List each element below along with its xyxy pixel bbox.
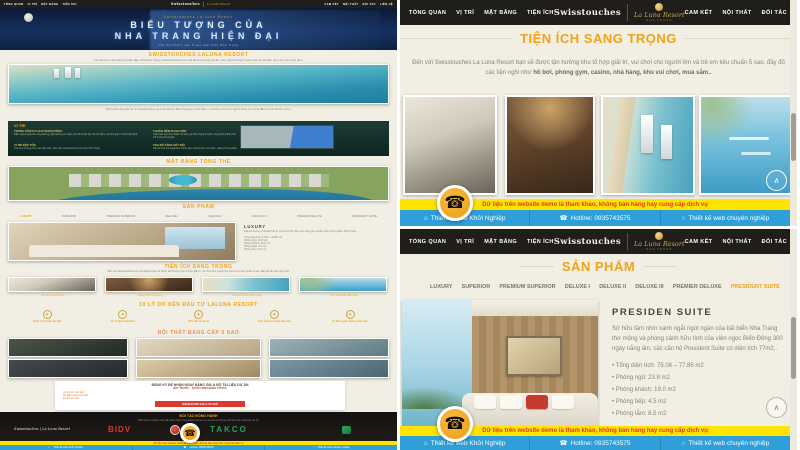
hero-subtitle: Căn hộ khách sạn 5 sao mặt biển Nha Tran…: [0, 43, 397, 47]
left-tab[interactable]: PREMIUM SUPERIOR: [107, 214, 136, 218]
panorama-tower-graphic: [75, 68, 80, 78]
hero-banner: Swisstouches La Luna Resort BIỂU TƯỢNG C…: [0, 8, 397, 50]
heading-line: [400, 38, 512, 39]
suite-name: PRESIDEN SUITE: [612, 307, 784, 318]
phone-icon: ☎: [559, 439, 567, 447]
reason-icon: ✦: [270, 310, 279, 319]
phone-icon: ☎: [444, 193, 465, 213]
amenities-title: TIỆN ÍCH SANG TRỌNG: [520, 31, 677, 46]
location-block-text: Tựa sơn hướng thủy, trực diện biển, tầm …: [14, 147, 144, 150]
reasons-row: ✦Pháp lý sở hữu lâu dài ✦Vị trí vàng mặt…: [12, 310, 385, 323]
left-nav-vi-tri[interactable]: VỊ TRÍ: [27, 3, 37, 6]
nav-vi-tri[interactable]: VỊ TRÍ: [456, 10, 474, 16]
pillow-graphic: [552, 395, 574, 409]
gallery-image-3: [269, 338, 389, 357]
left-amenities-intro: Đến với Swisstouches La Luna Resort bạn …: [16, 270, 381, 274]
tab-superior[interactable]: SUPERIOR: [462, 284, 491, 290]
reason-label: Chủ đầu tư uy tín: [164, 320, 234, 323]
hero-title-line1: BIỂU TƯỢNG CỦA: [0, 20, 397, 30]
left-nav-doi-tac[interactable]: ĐỐI TÁC: [362, 3, 375, 6]
tab-luxury[interactable]: LUXURY: [430, 284, 452, 290]
chevron-up-icon: ∧: [774, 403, 780, 412]
heading-line: [643, 266, 677, 267]
heading-line: [520, 266, 554, 267]
luxury-room-image: [8, 222, 236, 261]
amenity-image-lounge[interactable]: [505, 95, 595, 195]
panorama-caption: Phối cảnh tổng thể dự án Swisstouches La…: [20, 107, 377, 111]
footer-hotline[interactable]: ☎Hotline: 0935743575: [530, 436, 660, 450]
suite-specs: • Tổng diện tích: 75.06 – 77.85 m2 • Phò…: [612, 363, 784, 417]
luxury-name: LUXURY: [244, 224, 389, 229]
heading-line: [685, 38, 797, 39]
products-tabs: LUXURY SUPERIOR PREMIUM SUPERIOR DELUXE …: [430, 284, 780, 290]
pillow-graphic: [474, 395, 496, 409]
page: TỔNG QUAN VỊ TRÍ MẶT BẰNG TIỆN ÍCH Swiss…: [0, 0, 800, 450]
hero-pretitle: Swisstouches La Luna Resort: [0, 15, 397, 19]
amenity-caption: Khu đô thị biển Nha Trang: [202, 294, 292, 297]
phone-icon: ☎: [559, 214, 567, 222]
home-icon: ⌂: [424, 215, 428, 222]
footer-hotline[interactable]: ☎Hotline: 0935743575: [530, 210, 660, 226]
left-amenity-image-4: [299, 277, 387, 292]
suite-info: PRESIDEN SUITE Sở hữu tầm nhìn xanh ngắt…: [612, 307, 784, 417]
location-block-text: Nằm ngay trung tâm cung đường nghỉ dưỡng…: [14, 133, 144, 136]
amenities-intro: Đến với Swisstouches La Luna Resort bạn …: [412, 58, 785, 78]
moon-icon: [655, 3, 663, 11]
partner-logo-bidv[interactable]: BIDV: [108, 425, 131, 434]
phone-icon: ☎: [444, 414, 465, 434]
location-block-text: Liền kề tiện ích ngoại khu: bệnh viện, t…: [153, 147, 238, 150]
left-amenity-image-2: [105, 277, 193, 292]
nav-cam-ket[interactable]: CAM KẾT: [685, 239, 713, 245]
left-fullpage-preview: TỔNG QUAN VỊ TRÍ MẶT BẰNG TIỆN ÍCH Swiss…: [0, 0, 397, 450]
interior-title: NỘI THẤT ĐẲNG CẤP 5 SAO: [0, 330, 397, 336]
partner-logo-badge[interactable]: [170, 425, 180, 435]
tab-premier-deluxe[interactable]: PREMIER DELUXE: [673, 284, 722, 290]
tower-graphic: [641, 115, 653, 153]
partner-logo-takco[interactable]: TAKCO: [210, 425, 248, 434]
luxury-spec: Phòng tắm: 6.5 m2: [244, 248, 389, 251]
marina-graphic: [729, 137, 769, 140]
panorama-tower-graphic: [65, 67, 71, 78]
left-tab[interactable]: DELUXE III: [252, 214, 266, 218]
beach-graphic: [606, 97, 635, 193]
clock-icon: ○: [313, 446, 315, 449]
products-title: SẢN PHẨM: [562, 259, 635, 274]
panorama-image: [8, 64, 389, 104]
gallery-image-2: [136, 338, 261, 357]
tab-deluxe-1[interactable]: DELUXE I: [565, 284, 590, 290]
amenity-image-gym[interactable]: [403, 95, 497, 195]
bullet-icon: •: [612, 399, 614, 405]
phone-icon: ☎: [184, 428, 195, 439]
left-products-tabs: LUXURY SUPERIOR PREMIUM SUPERIOR DELUXE …: [20, 214, 377, 218]
reason-icon: ✦: [118, 310, 127, 319]
left-nav-cam-ket[interactable]: CAM KẾT: [324, 3, 339, 6]
nav-noi-that[interactable]: NỘI THẤT: [722, 239, 751, 245]
reason-label: 10 đêm nghỉ dưỡng mỗi năm: [315, 320, 385, 323]
form-field-email[interactable]: Email của bạn: [63, 397, 337, 400]
phone-float-button[interactable]: ☎: [437, 406, 473, 442]
amenity-caption: Bể bơi & khu Fitness: [8, 294, 98, 297]
partner-logo-swisstouches[interactable]: Swisstouches | La Luna Resort: [14, 427, 70, 431]
tab-premium-superior[interactable]: PREMIUM SUPERIOR: [499, 284, 555, 290]
partners-title: ĐỐI TÁC ĐỒNG HÀNH: [0, 414, 397, 418]
gallery-image-4: [8, 359, 128, 378]
tab-president-suite-active[interactable]: PRESIDENT SUITE: [731, 284, 780, 290]
amenities-panel: TỔNG QUAN VỊ TRÍ MẶT BẰNG TIỆN ÍCH Swiss…: [400, 0, 797, 226]
products-panel: TỔNG QUAN VỊ TRÍ MẶT BẰNG TIỆN ÍCH Swiss…: [400, 229, 797, 450]
form-subtitle: ĐẶT TRƯỚC – QUYẾT ĐỊNH ĐÚNG TRƯỚC: [63, 387, 337, 390]
home-icon: ⌂: [49, 446, 51, 449]
registration-form-card: ĐĂNG KÝ ĐỂ NHẬN NGAY BẢNG GIÁ & BỘ TÀI L…: [55, 381, 345, 410]
footer-link-right[interactable]: ○Thiết kế web chuyên nghiệp: [265, 445, 397, 450]
nav-noi-that[interactable]: NỘI THẤT: [722, 10, 751, 16]
swisstouches-logo[interactable]: Swisstouches: [554, 8, 621, 18]
suite-spec: • Phòng bếp: 4.5 m2: [612, 399, 784, 405]
reason-label: Vị trí vàng mặt biển: [88, 320, 158, 323]
luxury-desc: Căn hộ Luxury thiết kế tinh tế, cửa kính…: [244, 230, 389, 234]
left-amenity-image-3: [202, 277, 290, 292]
nav-tong-quan[interactable]: TỔNG QUAN: [409, 10, 446, 16]
bullet-icon: •: [612, 411, 614, 417]
left-tab[interactable]: DELUXE I: [166, 214, 179, 218]
logo-divider: [627, 4, 628, 21]
scroll-to-top-button[interactable]: ∧: [766, 397, 787, 418]
nav-vi-tri[interactable]: VỊ TRÍ: [456, 239, 474, 245]
amenities-navbar: TỔNG QUAN VỊ TRÍ MẶT BẰNG TIỆN ÍCH Swiss…: [400, 0, 797, 25]
laluna-logo[interactable]: La Luna Resort NHA TRANG: [634, 3, 685, 22]
swisstouches-logo[interactable]: Swisstouches: [171, 2, 200, 6]
left-footer-bar: ⌂Thiết kế web Khởi Nghiệp ☎Hotline: 0935…: [0, 445, 397, 450]
products-heading-row: SẢN PHẨM: [400, 259, 797, 274]
home-icon: ⌂: [424, 440, 428, 447]
amenity-image-towers[interactable]: [601, 95, 695, 195]
location-title: VỊ TRÍ: [14, 123, 25, 128]
amenity-caption: Vịnh du thuyền đẳng cấp: [299, 294, 389, 297]
suite-photo[interactable]: [402, 300, 598, 427]
left-tab[interactable]: SUPERIOR: [62, 214, 77, 218]
nav-doi-tac[interactable]: ĐỐI TÁC: [762, 239, 787, 245]
painting-graphic: [506, 336, 562, 376]
amenities-intro-bold: hồ bơi, phòng gym, casino, nhà hàng, khu…: [533, 70, 711, 76]
reason-icon: ✦: [346, 310, 355, 319]
suite-spec: • Phòng tắm: 8.5 m2: [612, 411, 784, 417]
nav-tien-ich[interactable]: TIỆN ÍCH: [527, 10, 554, 16]
clock-icon: ○: [681, 440, 685, 447]
tower-graphic: [661, 125, 672, 159]
tab-deluxe-2[interactable]: DELUXE II: [599, 284, 626, 290]
bullet-icon: •: [612, 375, 614, 381]
suite-spec: • Phòng khách: 19.0 m2: [612, 387, 784, 393]
location-block-text: Cách sân bay Cam Ranh 40 phút, ga Nha Tr…: [153, 133, 238, 139]
moon-icon: [655, 232, 663, 240]
reason-label: Cam kết lợi nhuận hấp dẫn: [239, 320, 309, 323]
nav-mat-bang[interactable]: MẶT BẰNG: [484, 239, 517, 245]
left-nav-noi-that[interactable]: NỘI THẤT: [343, 3, 358, 6]
pillow-graphic: [500, 395, 522, 409]
nav-tien-ich[interactable]: TIỆN ÍCH: [527, 239, 554, 245]
nav-mat-bang[interactable]: MẶT BẰNG: [484, 10, 517, 16]
amenity-caption: Phòng sinh hoạt chung: [105, 294, 195, 297]
left-navbar: TỔNG QUAN VỊ TRÍ MẶT BẰNG TIỆN ÍCH Swiss…: [0, 0, 397, 8]
location-map-image[interactable]: [240, 125, 334, 149]
left-nav-tong-quan[interactable]: TỔNG QUAN: [4, 3, 23, 6]
scroll-to-top-button[interactable]: ∧: [766, 170, 787, 191]
bullet-icon: •: [612, 387, 614, 393]
suite-desc: Sở hữu tầm nhìn xanh ngắt ngút ngàn của …: [612, 324, 784, 355]
luxury-info: LUXURY Căn hộ Luxury thiết kế tinh tế, c…: [244, 224, 389, 251]
products-navbar: TỔNG QUAN VỊ TRÍ MẶT BẰNG TIỆN ÍCH Swiss…: [400, 229, 797, 254]
reason-label: Pháp lý sở hữu lâu dài: [12, 320, 82, 323]
partner-logo-green[interactable]: [342, 426, 351, 434]
scrollbar-thumb[interactable]: [791, 317, 796, 379]
bullet-icon: •: [612, 363, 614, 369]
left-amenity-image-1: [8, 277, 96, 292]
masterplan-image: [8, 166, 389, 201]
location-section: VỊ TRÍ TRUNG TÂM DU LỊCH NGHỈ DƯỠNG Nằm …: [8, 121, 389, 156]
gallery-image-6: [269, 359, 389, 378]
phone-icon: ☎: [183, 446, 186, 449]
left-tab[interactable]: PRESIDENT SUITE: [352, 214, 377, 218]
left-tab[interactable]: DELUXE II: [209, 214, 223, 218]
laluna-logo[interactable]: La Luna Resort: [207, 2, 230, 6]
left-nav-mat-bang[interactable]: MẶT BẰNG: [41, 3, 58, 6]
reason-icon: ✦: [194, 310, 203, 319]
intro-body: Tọa lạc trên cung đường biển đẹp nhất Nh…: [20, 58, 377, 62]
reason-icon: ✦: [43, 310, 52, 319]
left-nav-tien-ich[interactable]: TIỆN ÍCH: [62, 3, 76, 6]
footer-hotline[interactable]: ☎Hotline: 0935743575: [133, 445, 266, 450]
partners-desc: Những thương hiệu hàng đầu đồng hành cùn…: [29, 419, 369, 422]
laluna-logo[interactable]: La Luna Resort NHA TRANG: [634, 232, 685, 251]
left-products-title: SẢN PHẨM: [0, 204, 397, 210]
swisstouches-logo[interactable]: Swisstouches: [554, 237, 621, 247]
left-tab-luxury[interactable]: LUXURY: [20, 214, 31, 218]
suite-spec: • Tổng diện tích: 75.06 – 77.85 m2: [612, 363, 784, 369]
footer-link-left[interactable]: ⌂Thiết kế web Khởi Nghiệp: [0, 445, 133, 450]
suite-spec: • Phòng ngủ: 23.8 m2: [612, 375, 784, 381]
form-submit-button[interactable]: NHẬN BẢNG GIÁ & ƯU ĐÃI: [155, 401, 245, 407]
hero-title-line2: NHA TRANG HIỆN ĐẠI: [0, 31, 397, 41]
left-nav-lien-he[interactable]: LIÊN HỆ: [380, 3, 393, 6]
reasons-title: 10 LÝ DO NÊN ĐẦU TƯ LALUNA RESORT: [0, 302, 397, 308]
scrollbar-thumb[interactable]: [791, 113, 796, 161]
left-tab[interactable]: PREMIER DELUXE: [297, 214, 322, 218]
nav-tong-quan[interactable]: TỔNG QUAN: [409, 239, 446, 245]
tab-deluxe-3[interactable]: DELUXE III: [635, 284, 663, 290]
footer-link-right[interactable]: ○Thiết kế web chuyên nghiệp: [661, 436, 790, 450]
nav-cam-ket[interactable]: CAM KẾT: [685, 10, 713, 16]
nav-doi-tac[interactable]: ĐỐI TÁC: [762, 10, 787, 16]
clock-icon: ○: [681, 215, 685, 222]
marina-graphic: [741, 152, 771, 155]
amenities-heading-row: TIỆN ÍCH SANG TRỌNG: [400, 31, 797, 46]
phone-float-button[interactable]: ☎: [180, 423, 200, 443]
logo-divider: [203, 2, 204, 7]
ceiling-graphic: [472, 300, 598, 316]
red-pillow-graphic: [526, 395, 548, 409]
phone-float-button[interactable]: ☎: [437, 185, 473, 221]
footer-link-right[interactable]: ○Thiết kế web chuyên nghiệp: [661, 210, 790, 226]
masterplan-title: MẶT BẰNG TỔNG THỂ: [0, 159, 397, 165]
gallery-image-1: [8, 338, 128, 357]
gallery-image-5: [136, 359, 261, 378]
chevron-up-icon: ∧: [774, 176, 780, 185]
logo-divider: [627, 233, 628, 250]
